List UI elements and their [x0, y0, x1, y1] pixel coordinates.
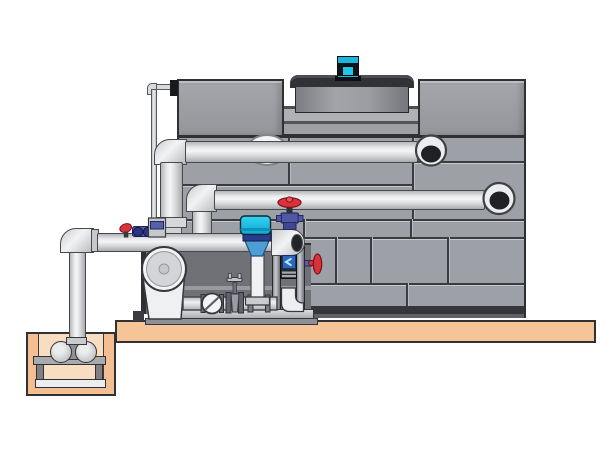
butterfly-valve-disc — [313, 254, 321, 274]
globe-valve-lug — [298, 216, 303, 222]
feeder-funnel — [245, 240, 270, 256]
vent-valve-stem — [124, 232, 129, 238]
suction-elbow-opening — [292, 235, 303, 252]
gate-valve-handle-prong — [238, 274, 241, 279]
globe-valve-body — [281, 213, 299, 223]
feeder-column — [251, 250, 264, 302]
gate-valve-body — [231, 294, 239, 312]
gate-valve-stem — [233, 283, 237, 294]
feeder-cap-band — [241, 228, 271, 231]
lower-pipe-end-opening — [490, 192, 510, 210]
controller-stripe — [282, 272, 296, 274]
feeder-cap — [241, 216, 271, 235]
riser-base-valve — [151, 222, 164, 230]
upper-pipe-end-opening — [421, 146, 441, 163]
globe-valve-bonnet — [284, 223, 297, 230]
gate-valve-flange — [226, 293, 231, 314]
feeder-base-flange — [246, 297, 270, 305]
globe-valve-hub — [286, 197, 292, 202]
dosing-valve-cap — [133, 227, 142, 236]
controller-stripe — [282, 275, 296, 277]
equipment-overlay — [0, 0, 600, 450]
cooling-tower-diagram — [0, 0, 600, 450]
globe-valve-lug — [277, 216, 282, 222]
frame-drain-elbow — [282, 288, 304, 312]
pump-inlet-hub — [159, 264, 169, 274]
gate-valve-handle-prong — [229, 274, 232, 279]
